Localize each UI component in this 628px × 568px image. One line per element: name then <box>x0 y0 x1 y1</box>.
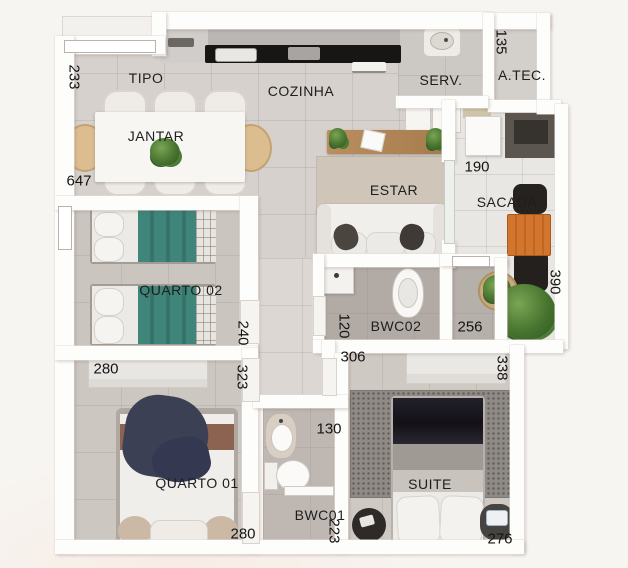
bed-pillow <box>439 495 484 545</box>
room-label-serv: SERV. <box>420 72 463 88</box>
door-suite <box>322 358 337 396</box>
faucet-dot <box>334 273 339 278</box>
laundry-tank-basin <box>430 32 454 50</box>
room-label-quarto01: QUARTO 01 <box>155 475 238 491</box>
wall-kitchen-top <box>152 12 492 29</box>
kitchen-sink <box>215 48 257 62</box>
dim-240: 240 <box>235 320 252 345</box>
dim-130: 130 <box>316 421 341 438</box>
wall-serv-atec <box>483 13 494 108</box>
room-label-atec: A.TEC. <box>498 67 546 83</box>
sliding-glass-door-sacada <box>444 160 455 244</box>
toilet-seat <box>398 278 418 308</box>
wall-closet-right <box>495 258 507 346</box>
dim-647: 647 <box>66 173 91 190</box>
barbecue-grill <box>514 120 548 144</box>
bed-pillow <box>396 495 441 545</box>
wall-bwc02-top <box>313 254 455 267</box>
dim-190: 190 <box>464 159 489 176</box>
wall-quarto02-bottom <box>55 346 257 360</box>
wardrobe <box>406 350 506 384</box>
bed-pillow <box>94 316 124 344</box>
fridge-cabinet <box>465 116 501 156</box>
washer-box <box>405 105 431 133</box>
faucet-dot <box>279 419 283 423</box>
crochet-blanket <box>196 210 216 262</box>
balcony-table <box>507 214 551 256</box>
wall-bottom-exterior <box>55 540 524 554</box>
dim-280-top: 280 <box>93 361 118 378</box>
dim-223: 223 <box>326 518 343 543</box>
console-plant <box>329 128 347 148</box>
room-label-suite: SUITE <box>408 476 452 492</box>
dim-338: 338 <box>494 355 511 380</box>
room-label-sacada: SACADA <box>477 194 538 210</box>
window-tipo <box>64 40 156 53</box>
laundry-faucet <box>444 38 448 42</box>
black-blanket-band <box>393 398 483 444</box>
wall-atec-right <box>537 13 550 113</box>
room-label-tipo: TIPO <box>129 70 164 86</box>
window-quarto02 <box>58 206 72 250</box>
dim-306: 306 <box>340 349 365 366</box>
bed-pillow <box>94 288 124 316</box>
room-label-cozinha: COZINHA <box>268 83 335 99</box>
dim-120: 120 <box>336 313 353 338</box>
towel-shelf <box>284 486 334 496</box>
exterior-ledge <box>62 16 162 38</box>
room-label-quarto02: QUARTO 02 <box>139 282 222 298</box>
wall-sacada-right <box>555 104 568 349</box>
kitchen-small-appliance <box>168 38 194 47</box>
wall-suite-right <box>510 345 524 552</box>
dim-256: 256 <box>457 319 482 336</box>
wall-left-exterior <box>55 36 74 552</box>
room-label-jantar: JANTAR <box>128 128 184 144</box>
kitchen-shelf <box>352 62 386 73</box>
dim-390: 390 <box>547 269 564 294</box>
door-bwc02 <box>313 296 326 336</box>
teal-blanket <box>138 210 196 262</box>
dim-135: 135 <box>493 29 510 54</box>
bed-pillow <box>94 212 124 237</box>
floor-plan: TIPO COZINHA SERV. A.TEC. JANTAR ESTAR S… <box>0 0 628 568</box>
grey-blanket-band <box>393 444 483 470</box>
wall-estar-sacada-upper <box>442 100 455 162</box>
dim-233: 233 <box>66 64 83 89</box>
room-label-bwc02: BWC02 <box>371 318 422 334</box>
kitchen-cooktop <box>288 47 320 60</box>
nightstand-item <box>486 510 508 526</box>
bathroom-sink-basin <box>271 424 293 452</box>
window-closet-sacada <box>452 256 490 267</box>
dim-323: 323 <box>234 364 251 389</box>
sofa-armrest <box>317 204 331 258</box>
wall-bwc01-top <box>253 395 348 408</box>
dim-276: 276 <box>487 531 512 548</box>
wall-closet-left <box>440 254 452 346</box>
wall-quarto02-top <box>55 196 255 210</box>
room-label-estar: ESTAR <box>370 182 418 198</box>
dim-280-bottom: 280 <box>230 526 255 543</box>
bed-pillow <box>94 237 124 262</box>
